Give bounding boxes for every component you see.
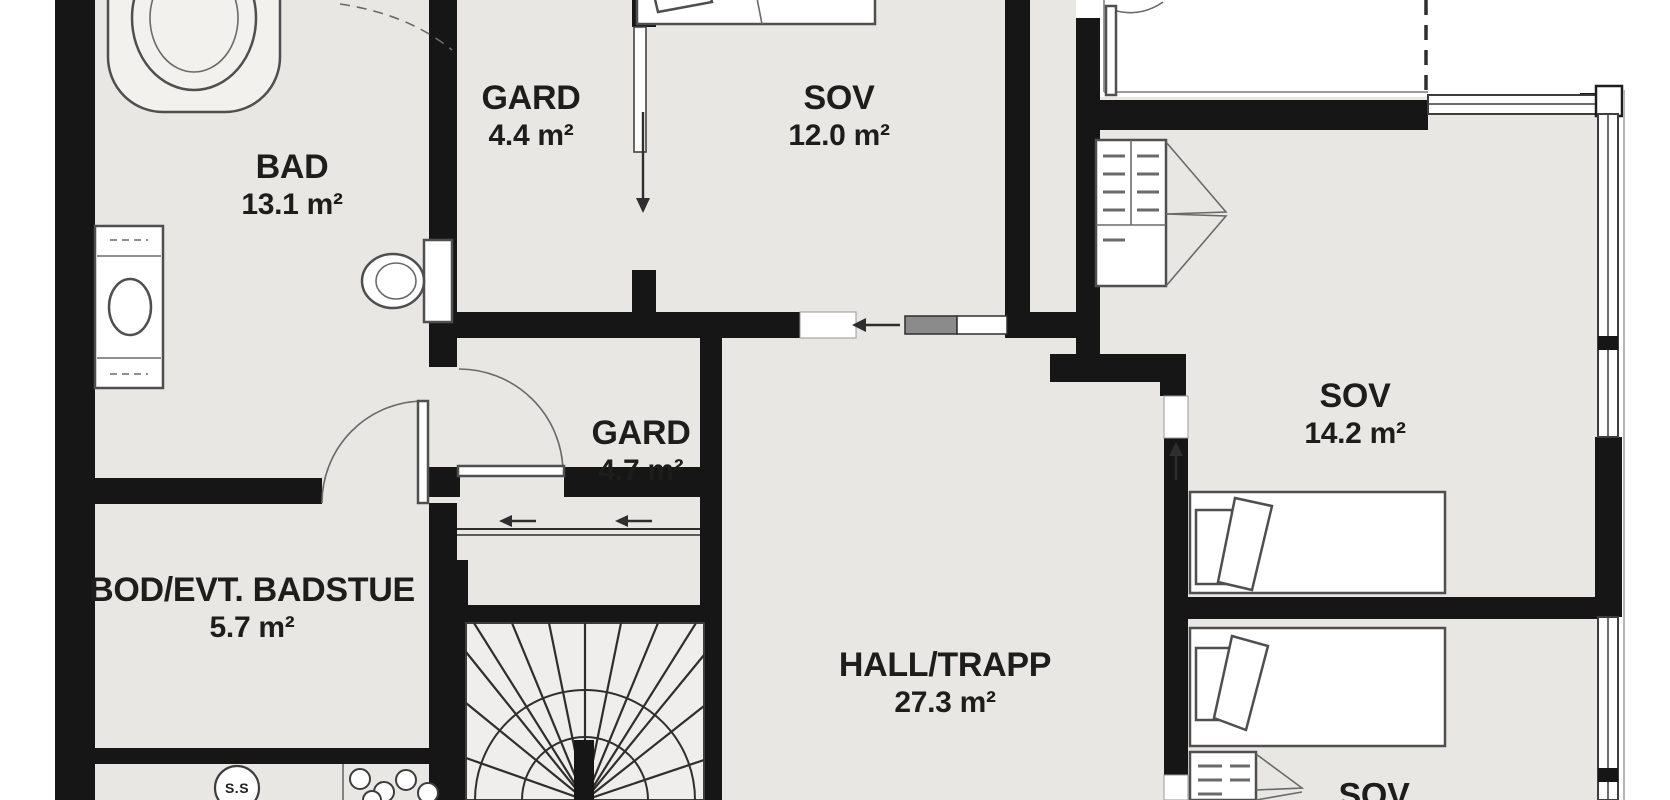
room-label-sov-142: SOV 14.2 m²	[1304, 378, 1405, 452]
room-label-sov-bottom: SOV	[1339, 778, 1410, 800]
sink-cabinet	[95, 226, 163, 388]
winder-stairs	[466, 623, 704, 800]
balcony	[1076, 0, 1622, 97]
sliding-pocket	[957, 316, 1007, 334]
bed-sov142	[1190, 492, 1445, 593]
bed-sov-bottom	[1190, 628, 1445, 746]
room-label-gard-47: GARD 4.7 m²	[592, 415, 691, 489]
room-label-gard-44: GARD 4.4 m²	[482, 80, 581, 154]
floor-plan: BAD 13.1 m² GARD 4.4 m² SOV 12.0 m² GARD…	[0, 0, 1670, 800]
sliding-leaf	[905, 316, 957, 334]
bed-sov12	[637, 0, 875, 24]
floor-drain-label: S.S	[225, 780, 249, 796]
stair-newel	[574, 740, 594, 800]
window-right-lower	[1598, 617, 1618, 800]
room-label-hall-trapp: HALL/TRAPP 27.3 m²	[839, 647, 1051, 721]
room-label-bod: BOD/EVT. BADSTUE 5.7 m²	[89, 572, 415, 646]
window-right-upper	[1598, 114, 1618, 437]
bathtub	[108, 0, 280, 112]
room-label-sov-12: SOV 12.0 m²	[788, 80, 889, 154]
room-label-bad: BAD 13.1 m²	[241, 149, 342, 223]
